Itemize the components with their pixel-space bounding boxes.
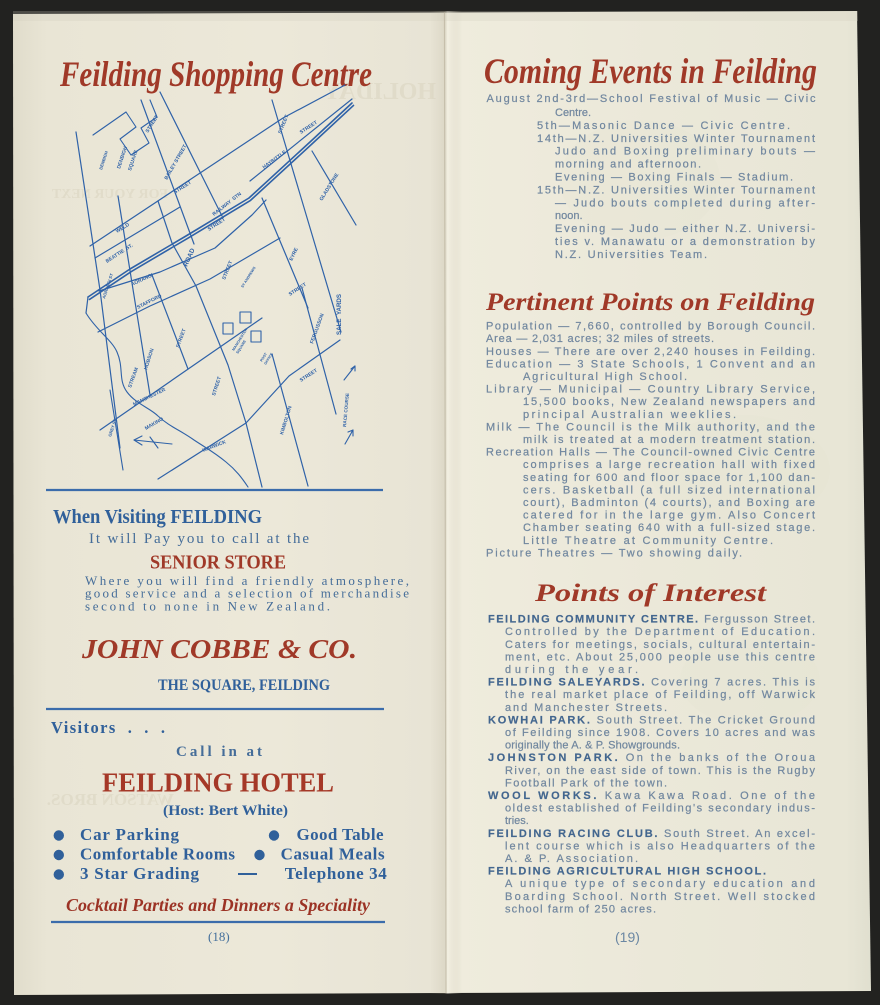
svg-text:FEILDING RACING CLUB. South St: FEILDING RACING CLUB. South Street. An e… bbox=[488, 828, 815, 840]
svg-text:(18): (18) bbox=[208, 929, 230, 944]
svg-text:and Manchester Streets.: and Manchester Streets. bbox=[505, 702, 667, 714]
svg-text:Recreation Halls — The Council: Recreation Halls — The Council-owned Civ… bbox=[486, 447, 815, 459]
svg-text:JOHN COBBE & CO.: JOHN COBBE & CO. bbox=[81, 634, 357, 664]
svg-text:of Feilding since 1908. Cover: of Feilding since 1908. Covers 10 acres … bbox=[505, 727, 816, 739]
svg-text:tries.: tries. bbox=[505, 815, 529, 827]
svg-text:Chamber seating 640 with a ful: Chamber seating 640 with a full-sized st… bbox=[523, 522, 815, 534]
svg-text:Football Park of the town.: Football Park of the town. bbox=[505, 777, 667, 789]
svg-text:Centre.: Centre. bbox=[555, 107, 591, 119]
svg-text:Comfortable Rooms: Comfortable Rooms bbox=[80, 845, 235, 864]
svg-text:Boarding School. North Street: Boarding School. North Street. Well stoc… bbox=[505, 891, 815, 903]
svg-text:SENIOR STORE: SENIOR STORE bbox=[150, 552, 286, 574]
svg-text:A unique type of secondary edu: A unique type of secondary education and bbox=[505, 878, 815, 890]
svg-text:Points of Interest: Points of Interest bbox=[534, 580, 768, 607]
svg-text:noon.: noon. bbox=[555, 210, 583, 222]
svg-text:It will Pay you to call at the: It will Pay you to call at the bbox=[89, 531, 309, 547]
svg-text:3 Star Grading: 3 Star Grading bbox=[80, 864, 200, 883]
svg-text:(Host: Bert White): (Host: Bert White) bbox=[163, 803, 288, 819]
svg-text:FOR YOUR NEXT: FOR YOUR NEXT bbox=[51, 187, 168, 202]
svg-text:Telephone 34: Telephone 34 bbox=[285, 864, 388, 883]
svg-text:Little Theatre at Community Ce: Little Theatre at Community Centre. bbox=[523, 535, 773, 547]
svg-text:seating for 600 and floor spac: seating for 600 and floor space for 1,10… bbox=[523, 472, 815, 484]
svg-text:15th—N.Z. Universities Winter: 15th—N.Z. Universities Winter Tournament bbox=[537, 184, 815, 196]
svg-text:FEILDING COMMUNITY CENTRE. Fer: FEILDING COMMUNITY CENTRE. Fergusson Str… bbox=[488, 614, 815, 626]
svg-text:during the year.: during the year. bbox=[505, 664, 638, 676]
svg-text:milk is treated at a modern tr: milk is treated at a modern treatment st… bbox=[523, 434, 815, 446]
svg-text:— Judo bouts completed during: — Judo bouts completed during after- bbox=[555, 197, 815, 209]
svg-text:(19): (19) bbox=[615, 929, 640, 945]
svg-text:ties v. Manawatu or a demonstr: ties v. Manawatu or a demonstration by bbox=[555, 236, 816, 248]
svg-text:River, on the east side of tow: River, on the east side of town. This is… bbox=[505, 765, 816, 777]
svg-text:court), Badminton (4 courts),: court), Badminton (4 courts), and Boxing… bbox=[523, 497, 815, 509]
svg-text:Feilding Shopping Centre: Feilding Shopping Centre bbox=[59, 54, 372, 94]
svg-text:N.Z. Universities Team.: N.Z. Universities Team. bbox=[555, 249, 707, 261]
svg-text:Education — 3 State Schools, 1: Education — 3 State Schools, 1 Convent a… bbox=[486, 358, 815, 370]
svg-text:August 2nd-3rd—School Festival: August 2nd-3rd—School Festival of Music … bbox=[487, 93, 817, 105]
svg-text:Good Table: Good Table bbox=[297, 825, 384, 844]
svg-text:Evening — Judo — either N.Z. U: Evening — Judo — either N.Z. Universi- bbox=[555, 223, 815, 235]
svg-text:morning and afternoon.: morning and afternoon. bbox=[555, 159, 701, 171]
svg-text:Visitors . . .: Visitors . . . bbox=[51, 718, 165, 737]
svg-text:lent course which is also Head: lent course which is also Headquarters o… bbox=[505, 840, 815, 852]
svg-text:cers. Basketball (a full size: cers. Basketball (a full sized internati… bbox=[523, 484, 815, 496]
svg-text:When Visiting FEILDING: When Visiting FEILDING bbox=[53, 507, 262, 528]
svg-text:Pertinent Points on Feilding: Pertinent Points on Feilding bbox=[485, 289, 815, 316]
svg-text:Car Parking: Car Parking bbox=[80, 825, 180, 844]
svg-text:comprises a large recreation h: comprises a large recreation hall with f… bbox=[523, 459, 815, 471]
svg-text:5th—Masonic Dance — Civic Cent: 5th—Masonic Dance — Civic Centre. bbox=[537, 120, 790, 132]
svg-text:originally the A. & P. Showgro: originally the A. & P. Showgrounds. bbox=[505, 740, 680, 752]
svg-text:Casual Meals: Casual Meals bbox=[281, 845, 385, 864]
svg-text:Houses — There are over 2,240: Houses — There are over 2,240 houses in … bbox=[486, 346, 815, 358]
svg-text:FEILDING HOTEL: FEILDING HOTEL bbox=[102, 768, 334, 798]
svg-text:Population — 7,660, controlled: Population — 7,660, controlled by Boroug… bbox=[486, 321, 815, 333]
svg-text:THE SQUARE, FEILDING: THE SQUARE, FEILDING bbox=[158, 675, 330, 694]
svg-text:SALE YARDS: SALE YARDS bbox=[336, 294, 343, 335]
svg-text:school farm of 250 acres.: school farm of 250 acres. bbox=[505, 903, 656, 915]
svg-text:15,500 books, New Zealand news: 15,500 books, New Zealand newspapers and bbox=[523, 396, 815, 408]
svg-text:FEILDING AGRICULTURAL HIGH SCH: FEILDING AGRICULTURAL HIGH SCHOOL. bbox=[488, 866, 766, 878]
svg-text:oldest established of Feilding: oldest established of Feilding's seconda… bbox=[505, 803, 815, 815]
svg-text:Picture Theatres — Two showing: Picture Theatres — Two showing daily. bbox=[486, 547, 742, 559]
svg-text:Area — 2,031 acres; 32 miles o: Area — 2,031 acres; 32 miles of streets. bbox=[486, 333, 714, 345]
svg-text:Coming Events in Feilding: Coming Events in Feilding bbox=[484, 51, 817, 91]
svg-text:Library — Municipal — Country: Library — Municipal — Country Library Se… bbox=[486, 384, 815, 396]
svg-text:catered for in the large gym.: catered for in the large gym. Also Conce… bbox=[523, 510, 815, 522]
svg-text:second to none in New Zealand.: second to none in New Zealand. bbox=[85, 598, 330, 613]
svg-text:Evening — Boxing Finals — Stad: Evening — Boxing Finals — Stadium. bbox=[555, 172, 793, 184]
svg-text:Cocktail Parties and Dinners a: Cocktail Parties and Dinners a Specialit… bbox=[66, 895, 370, 915]
svg-text:14th—N.Z. Universities Winter: 14th—N.Z. Universities Winter Tournament bbox=[537, 133, 815, 145]
